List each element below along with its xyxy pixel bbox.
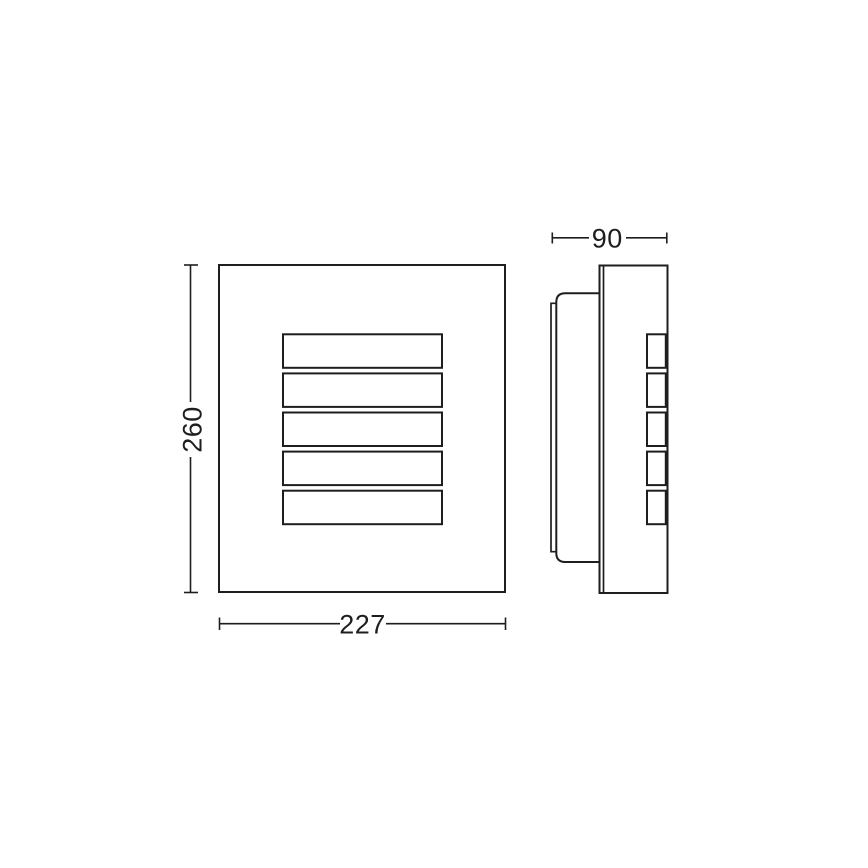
side-view-slat-5 bbox=[647, 491, 666, 525]
dimension-depth: 90 bbox=[552, 224, 667, 254]
front-view-slat-1 bbox=[283, 334, 442, 368]
dimension-drawing: 260 227 90 bbox=[0, 0, 868, 868]
dimension-height-label: 260 bbox=[178, 406, 208, 453]
dimension-width: 227 bbox=[220, 610, 506, 640]
side-view-slat-1 bbox=[647, 334, 666, 368]
dimension-depth-label: 90 bbox=[592, 224, 623, 254]
technical-drawing-canvas: 260 227 90 bbox=[0, 0, 868, 868]
front-view-slat-4 bbox=[283, 452, 442, 486]
side-view-slat-3 bbox=[647, 413, 666, 447]
front-view-slat-5 bbox=[283, 491, 442, 525]
front-view bbox=[219, 265, 505, 592]
side-view bbox=[551, 266, 668, 594]
side-view-slat-4 bbox=[647, 452, 666, 486]
front-view-slat-2 bbox=[283, 373, 442, 407]
dimension-height: 260 bbox=[178, 265, 208, 593]
side-view-slat-2 bbox=[647, 373, 666, 407]
side-view-mount-base bbox=[556, 293, 601, 562]
front-view-slat-3 bbox=[283, 413, 442, 447]
dimension-width-label: 227 bbox=[339, 610, 386, 640]
